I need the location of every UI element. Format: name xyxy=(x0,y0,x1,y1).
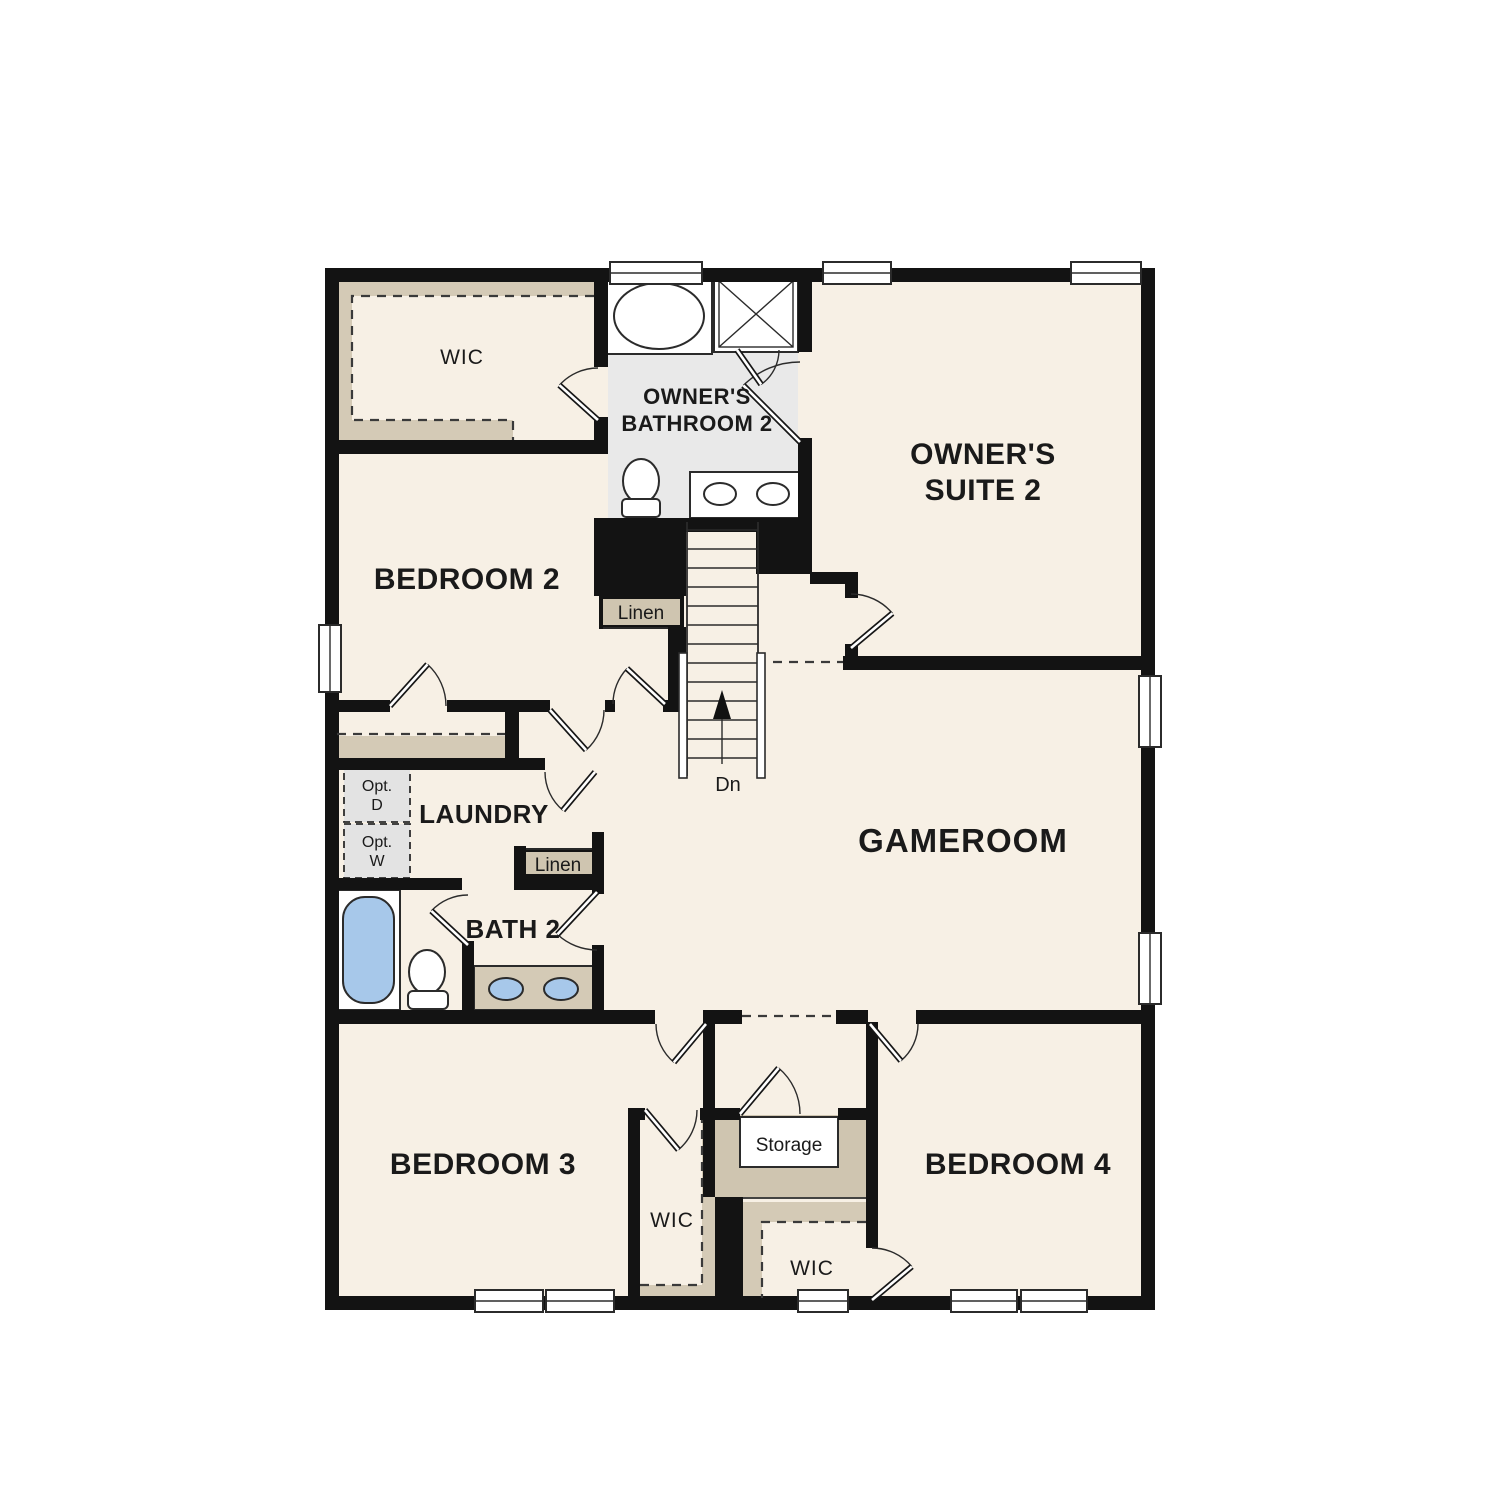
wall-segment xyxy=(715,1197,743,1310)
bathtub-icon-bath2 xyxy=(337,890,400,1010)
shower-icon xyxy=(714,276,798,352)
gameroom-label: GAMEROOM xyxy=(858,822,1068,859)
linen-upper-label: Linen xyxy=(618,603,665,624)
wall-segment xyxy=(836,1010,868,1024)
wall-segment xyxy=(866,1022,878,1248)
bedroom4-label: BEDROOM 4 xyxy=(925,1148,1111,1181)
window xyxy=(1139,933,1161,1004)
bedroom2-label: BEDROOM 2 xyxy=(374,563,560,596)
wall-segment xyxy=(325,268,1155,282)
opt-washer-label-line1: Opt. xyxy=(362,834,392,851)
wall-segment xyxy=(325,700,390,712)
owners-suite-label-line2: SUITE 2 xyxy=(925,474,1042,507)
owners-bathroom-label-line2: BATHROOM 2 xyxy=(621,411,772,436)
bedroom2-closet-shelf xyxy=(337,736,505,758)
wall-segment xyxy=(594,268,608,367)
wall-segment xyxy=(594,518,686,596)
wall-segment xyxy=(756,518,812,574)
owners-bathroom-label-line1: OWNER'S xyxy=(643,384,751,409)
double-sink-vanity-bath2 xyxy=(474,966,594,1010)
wall-segment xyxy=(703,1022,715,1108)
floor-plan-page: WIC OWNER'S BATHROOM 2 OWNER'S SUITE 2 B… xyxy=(0,0,1500,1500)
window xyxy=(610,262,702,284)
window xyxy=(951,1290,1017,1312)
wall-segment xyxy=(462,941,474,1013)
owners-suite-label-line1: OWNER'S xyxy=(910,438,1056,471)
window xyxy=(1071,262,1141,284)
wall-segment xyxy=(447,700,550,712)
wall-segment xyxy=(798,268,812,352)
linen-lower-label: Linen xyxy=(535,855,582,876)
wall-segment xyxy=(628,1108,640,1310)
window xyxy=(823,262,891,284)
wall-segment xyxy=(916,1010,1143,1024)
wic-bedroom4-label: WIC xyxy=(790,1257,834,1280)
bedroom3-label: BEDROOM 3 xyxy=(390,1148,576,1181)
toilet-icon-bath2 xyxy=(408,950,448,1009)
wall-segment xyxy=(703,1010,742,1024)
wall-segment xyxy=(843,656,1143,670)
wall-segment xyxy=(325,878,462,890)
toilet-icon-owners xyxy=(622,459,660,517)
opt-dryer-label-line2: D xyxy=(371,797,383,814)
double-sink-vanity-owners xyxy=(690,472,804,518)
window xyxy=(798,1290,848,1312)
wall-segment xyxy=(594,417,608,454)
wall-segment xyxy=(798,438,812,530)
wall-segment xyxy=(592,945,604,1010)
wall-segment xyxy=(703,1108,715,1197)
wall-segment xyxy=(325,1010,655,1024)
wall-segment xyxy=(1141,268,1155,1310)
window xyxy=(1021,1290,1087,1312)
wall-segment xyxy=(325,440,608,454)
floor-plan: WIC OWNER'S BATHROOM 2 OWNER'S SUITE 2 B… xyxy=(0,0,1500,1500)
wall-segment xyxy=(325,268,339,1310)
opt-dryer-label-line1: Opt. xyxy=(362,778,392,795)
wall-segment xyxy=(514,877,604,890)
bathtub-icon xyxy=(606,278,712,354)
opt-washer-label-line2: W xyxy=(369,853,385,870)
wall-segment xyxy=(838,1108,868,1120)
window xyxy=(1139,676,1161,747)
wic-bedroom3-label: WIC xyxy=(650,1209,694,1232)
window xyxy=(319,625,341,692)
bath2-label: BATH 2 xyxy=(466,914,561,944)
wall-segment xyxy=(325,758,545,770)
window xyxy=(475,1290,543,1312)
laundry-label: LAUNDRY xyxy=(419,799,549,829)
window xyxy=(546,1290,614,1312)
wic-top-label: WIC xyxy=(440,346,484,369)
storage-label: Storage xyxy=(756,1135,823,1156)
stairs-dn-label: Dn xyxy=(715,774,741,796)
wic-bedroom4-shelf-left xyxy=(743,1202,762,1298)
